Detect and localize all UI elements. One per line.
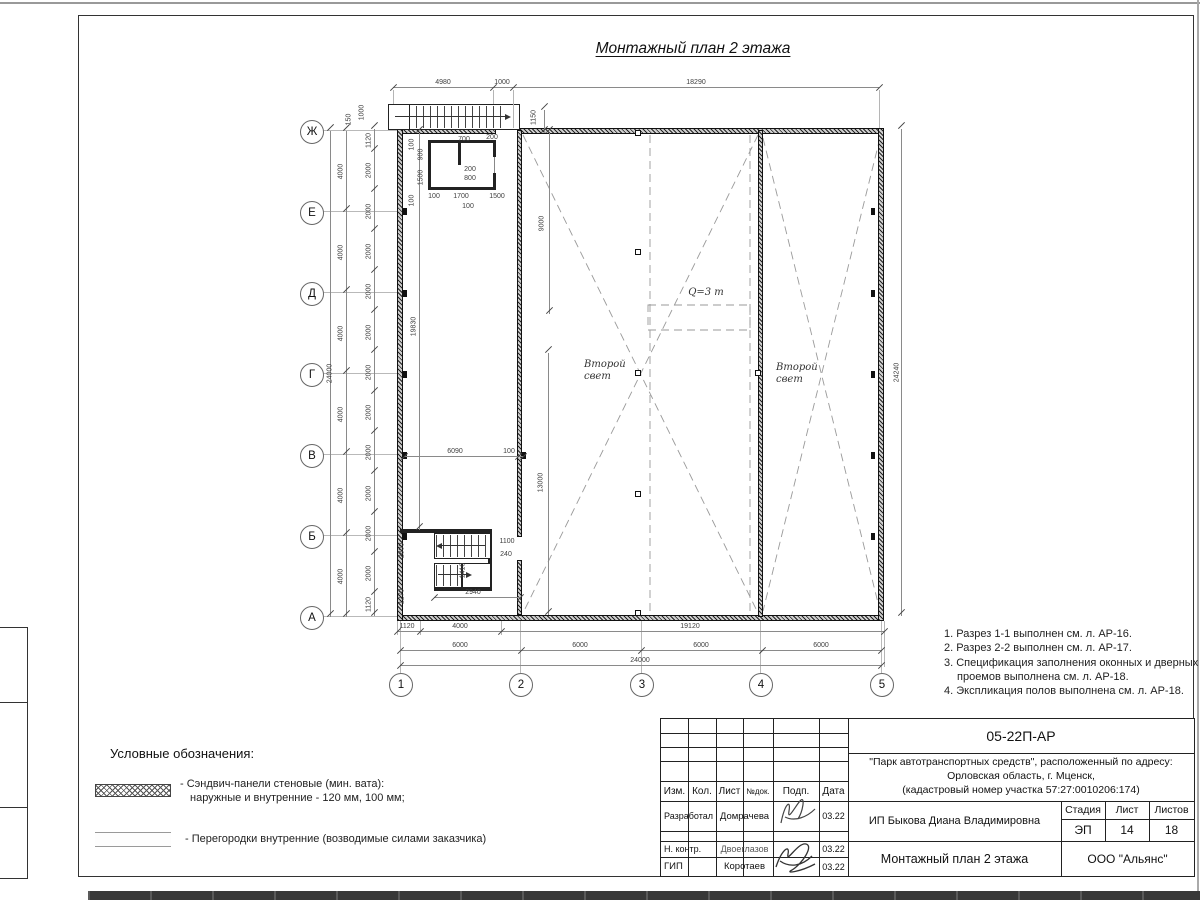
dim-vestibule — [544, 110, 545, 133]
dim-label: 6000 — [806, 642, 836, 649]
tb-line — [661, 831, 848, 832]
dim-chain-right — [901, 129, 902, 616]
dim-label: 4000 — [338, 319, 345, 349]
dim-label: 6000 — [565, 642, 595, 649]
dim-label: 24240 — [894, 353, 901, 393]
left-stamp-box-3 — [0, 807, 28, 879]
legend-title: Условные обозначения: — [110, 746, 254, 761]
dim-label: 100 — [425, 193, 443, 200]
stair-treads — [409, 106, 506, 128]
wall-pilaster — [871, 290, 875, 297]
dim-label: 1120 — [394, 623, 420, 630]
grid-axis-line — [322, 292, 397, 293]
crane-capacity-label: Q=3 т — [682, 287, 730, 299]
dim-corridor-width — [404, 456, 523, 457]
notes-block: 1. Разрез 1-1 выполнен см. л. АР-16. 2. … — [944, 627, 1200, 698]
dim-label: 100 — [409, 189, 416, 213]
tb-sheets-header: Листов — [1149, 801, 1194, 819]
grid-axis-line — [322, 211, 397, 212]
ext-line — [501, 621, 502, 635]
wall-axis2-lower — [517, 560, 522, 615]
dim-label: 900 — [418, 143, 425, 167]
dim-label: 2000 — [366, 559, 373, 589]
ext-line — [393, 90, 394, 104]
shaft-wall-left — [428, 140, 431, 190]
wall-pilaster — [871, 533, 875, 540]
dim-label: 1150 — [531, 103, 538, 133]
stair-landing-line — [409, 105, 410, 129]
second-light-label-right: Второй свет — [776, 362, 822, 385]
shaft-wall-right-lower — [493, 173, 496, 190]
dim-label: 4000 — [338, 562, 345, 592]
dim-9000 — [549, 133, 550, 314]
tb-line — [661, 733, 848, 734]
page-title: Монтажный план 2 этажа — [498, 40, 888, 58]
grid-axis-line — [322, 130, 397, 131]
wall-axis2-upper — [517, 130, 522, 537]
wall-pilaster — [871, 208, 875, 215]
legend-swatch-sandwich-panel — [95, 784, 171, 797]
tb-sheets-value: 18 — [1149, 819, 1194, 841]
tb-name-gip: Коротаев — [716, 857, 773, 876]
dim-label: 19120 — [668, 623, 712, 630]
grid-bubble-row: А — [300, 606, 324, 630]
sheet-top-edge — [0, 2, 1200, 4]
dim-label: 4980 — [418, 79, 468, 86]
dim-label: 6000 — [686, 642, 716, 649]
tb-header-list: Лист — [716, 781, 743, 801]
legend-item-sandwich-line1: - Сэндвич-панели стеновые (мин. вата): — [180, 778, 384, 792]
tb-header-kol: Кол. — [688, 781, 716, 801]
dim-label: 2000 — [366, 398, 373, 428]
tb-doc-number: 05-22П-АР — [848, 719, 1194, 753]
dim-chain-left-panels — [374, 129, 375, 616]
drawing-sheet: Монтажный план 2 этажа — [0, 0, 1200, 900]
dim-stair-chain — [434, 597, 520, 598]
tb-project-line2: Орловская область, г. Мценск, — [852, 769, 1190, 783]
dim-chain-top — [393, 87, 879, 88]
grid-axis-line — [322, 616, 397, 617]
shaft-wall-right-upper — [493, 140, 496, 157]
stair-treads — [436, 535, 490, 557]
ext-line — [879, 90, 880, 128]
grid-bubble-col: 2 — [509, 673, 533, 697]
dim-label: 2000 — [366, 197, 373, 227]
note-item: 2. Разрез 2-2 выполнен см. л. АР-17. — [944, 641, 1200, 655]
grid-axis-line — [322, 454, 397, 455]
grid-axis-line — [322, 535, 397, 536]
stair-treads — [436, 565, 461, 586]
dim-label: 800 — [460, 175, 480, 182]
tb-date-developer: 03.22 — [819, 801, 848, 831]
dim-chain-bottom-2 — [400, 650, 881, 651]
tb-line — [661, 747, 848, 748]
tb-name-developer: Домрачева — [716, 801, 773, 831]
dim-label: 1120 — [366, 126, 373, 156]
dim-label: 1500 — [484, 193, 510, 200]
tb-drawing-title: Монтажный план 2 этажа — [848, 841, 1061, 876]
wall-pilaster — [871, 452, 875, 459]
dim-label: 700 — [452, 136, 476, 143]
dim-label: 1120 — [366, 590, 373, 620]
stair-direction-line — [440, 545, 485, 546]
dim-label: 9000 — [539, 209, 546, 239]
tb-header-ndok: №док. — [743, 781, 773, 801]
note-item: 4. Экспликация полов выполнена см. л. АР… — [944, 684, 1200, 698]
stair-arrow-icon — [505, 114, 511, 120]
legend-item-sandwich-line2: наружные и внутренние - 120 мм, 100 мм; — [190, 792, 405, 806]
tb-header-data: Дата — [819, 781, 848, 801]
dim-label: 24000 — [618, 657, 662, 664]
dim-label: 4000 — [445, 623, 475, 630]
tb-stage-value: ЭП — [1061, 819, 1105, 841]
tb-name-ncontrol: Двоеглазов — [716, 841, 773, 857]
grid-bubble-row: Е — [300, 201, 324, 225]
dim-label: 2000 — [366, 277, 373, 307]
shaft-wall-bottom — [428, 187, 496, 190]
grid-bubble-row: Г — [300, 363, 324, 387]
column — [755, 370, 761, 376]
dim-label: 6090 — [440, 448, 470, 455]
ext-line — [884, 621, 885, 667]
tb-date-gip: 03.22 — [819, 857, 848, 876]
grid-bubble-col: 5 — [870, 673, 894, 697]
dim-label: 24000 — [327, 354, 334, 394]
grid-bubble-col: 4 — [749, 673, 773, 697]
dim-label: 1500 — [418, 166, 425, 190]
dim-corridor-length — [419, 133, 420, 530]
column — [635, 130, 641, 136]
stair-direction-line — [395, 116, 505, 117]
grid-bubble-col: 3 — [630, 673, 654, 697]
note-item: 3. Спецификация заполнения оконных и две… — [944, 656, 1200, 685]
grid-bubble-row: Ж — [300, 120, 324, 144]
ext-line — [493, 90, 494, 104]
dim-label: 150 — [346, 105, 353, 135]
dim-label: 2000 — [366, 358, 373, 388]
wall-pilaster — [871, 371, 875, 378]
wall-right — [878, 128, 884, 621]
stair-arrow-icon — [436, 543, 442, 549]
grid-bubble-col: 1 — [389, 673, 413, 697]
legend-item-partition: - Перегородки внутренние (возводимые сил… — [185, 833, 486, 847]
dim-label: 4000 — [338, 157, 345, 187]
grid-bubble-row: В — [300, 444, 324, 468]
dim-label: 2000 — [366, 318, 373, 348]
tb-role-ncontrol: Н. контр. — [662, 841, 718, 857]
sheet-right-edge — [1197, 0, 1199, 900]
dim-label: 100 — [459, 203, 477, 210]
dim-label: 19830 — [411, 309, 418, 345]
grid-bubble-row: Д — [300, 282, 324, 306]
column — [635, 249, 641, 255]
dim-label: 2000 — [366, 519, 373, 549]
dim-chain-bottom-total — [400, 665, 881, 666]
dim-label: 1410 — [460, 556, 467, 586]
stair-arrow-icon — [466, 572, 472, 578]
interior-stair-lower-flight — [434, 563, 462, 588]
tb-sheet-header: Лист — [1105, 801, 1149, 819]
dim-label: 200 — [460, 166, 480, 173]
dim-label: 2000 — [366, 438, 373, 468]
tb-sheet-value: 14 — [1105, 819, 1149, 841]
grid-bubble-row: Б — [300, 525, 324, 549]
left-stamp-box-2 — [0, 702, 28, 809]
column — [635, 610, 641, 616]
wall-top-right — [518, 128, 884, 134]
tb-project-line3: (кадастровый номер участка 57:27:0010206… — [852, 783, 1190, 797]
dim-label: 13000 — [538, 468, 545, 498]
wall-pilaster — [403, 208, 407, 215]
wall-pilaster — [403, 290, 407, 297]
tb-line — [848, 753, 1194, 754]
column — [635, 491, 641, 497]
dim-label: 2940 — [458, 589, 488, 596]
wall-pilaster — [403, 371, 407, 378]
tb-project-line1: "Парк автотранспортных средств", располо… — [852, 755, 1190, 769]
dim-label: 240 — [496, 551, 516, 558]
signature-gip — [771, 837, 821, 877]
ext-line — [513, 90, 514, 128]
tb-header-izm: Изм. — [661, 781, 688, 801]
dim-label: 1100 — [494, 538, 520, 545]
signature-developer — [773, 795, 819, 833]
column — [635, 370, 641, 376]
dim-label: 6000 — [445, 642, 475, 649]
left-stamp-box-1 — [0, 627, 28, 704]
dim-label: 2800 — [399, 536, 406, 566]
dim-chain-left-bays — [346, 131, 347, 617]
dim-label: 2000 — [366, 156, 373, 186]
dim-label: 18290 — [671, 79, 721, 86]
legend-swatch-partition — [95, 832, 171, 847]
dim-label: 1000 — [487, 79, 517, 86]
dim-label: 1270 — [399, 582, 406, 612]
dim-label: 2000 — [366, 479, 373, 509]
tb-role-developer: Разработал — [662, 801, 718, 831]
shaft-partition — [458, 143, 461, 165]
dim-13000 — [548, 353, 549, 615]
dim-label: 2000 — [366, 237, 373, 267]
note-item: 1. Разрез 1-1 выполнен см. л. АР-16. — [944, 627, 1200, 641]
dim-label: 1000 — [359, 98, 366, 128]
dim-label: 4000 — [338, 238, 345, 268]
dim-label: 1700 — [448, 193, 474, 200]
dim-label: 200 — [482, 134, 502, 141]
tb-line — [661, 761, 848, 762]
exterior-stair — [388, 104, 520, 130]
ext-line — [420, 621, 421, 635]
tb-company: ООО "Альянс" — [1061, 841, 1194, 876]
tb-date-ncontrol: 03.22 — [819, 841, 848, 857]
tb-client: ИП Быкова Диана Владимировна — [848, 801, 1061, 841]
dim-label: 4000 — [338, 400, 345, 430]
title-block: Изм. Кол. Лист №док. Подп. Дата Разработ… — [660, 718, 1195, 877]
tb-stage-header: Стадия — [1061, 801, 1105, 819]
shaft-door-leaf — [494, 157, 495, 173]
dim-label: 100 — [497, 448, 521, 455]
bottom-ruler-strip — [88, 891, 1200, 900]
tb-role-gip: ГИП — [662, 857, 718, 876]
second-light-label-left: Второй свет — [584, 359, 630, 382]
dim-chain-bottom-1 — [397, 631, 884, 632]
dim-label: 4000 — [338, 481, 345, 511]
dim-label: 100 — [409, 133, 416, 157]
